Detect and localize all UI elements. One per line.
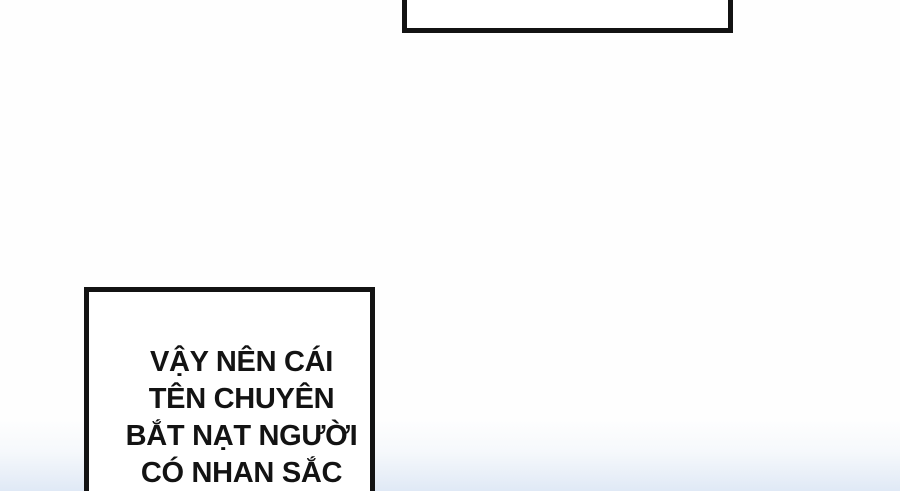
speech-bubble-bottom-text: VẬY NÊN CÁI TÊN CHUYÊN BẮT NẠT NGƯỜI CÓ … [89,344,370,491]
speech-line: VẬY NÊN CÁI [113,344,370,381]
speech-line: TÊN CHUYÊN [113,381,370,418]
speech-bubble-top [402,0,733,33]
speech-line: BẮT NẠT NGƯỜI [113,418,370,455]
comic-panel: VẬY NÊN CÁI TÊN CHUYÊN BẮT NẠT NGƯỜI CÓ … [0,0,900,491]
speech-line: CÓ NHAN SẮC [113,455,370,491]
speech-bubble-bottom: VẬY NÊN CÁI TÊN CHUYÊN BẮT NẠT NGƯỜI CÓ … [84,287,375,491]
